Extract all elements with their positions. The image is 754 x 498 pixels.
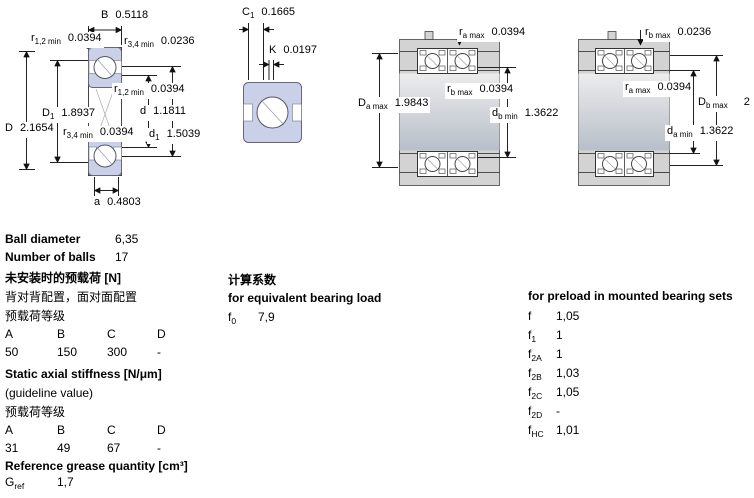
stiffness-value-C: 67 (107, 441, 120, 455)
bearing-datasheet-page: { "dims": { "d1_B": {"base":"B","sub":""… (0, 0, 754, 498)
factor-f2C-symbol: f2C (528, 385, 542, 403)
preload-factors-title: for preload in mounted bearing sets (528, 289, 733, 303)
factor-f-symbol: f (528, 309, 531, 327)
stiffness-value-A: 31 (5, 441, 18, 455)
dim-label-ra-max-shaft: ra max0.0394 (623, 81, 693, 97)
factor-f-value: 1,05 (556, 309, 579, 323)
f0-symbol: f0 (228, 310, 236, 328)
dim-label-da-min: da min1.3622 (665, 125, 735, 141)
factor-fHC-value: 1,01 (556, 423, 579, 437)
dim-label-B: B0.5118 (99, 9, 150, 25)
factor-f2D-symbol: f2D (528, 404, 542, 422)
dim-label-Db-max: Db max2 (696, 96, 752, 112)
stiffness-note: (guideline value) (5, 386, 93, 400)
dim-label-r34-min-mid: r3,4 min0.0394 (61, 126, 136, 142)
class-header-D: D (157, 327, 166, 341)
stiffness-value-D: - (157, 441, 161, 455)
factor-f2C-value: 1,05 (556, 385, 579, 399)
dim-label-ra-max-housing: ra max0.0394 (457, 26, 527, 42)
dim-label-db-min: db min1.3622 (490, 107, 560, 123)
dim-label-D1: D11.8937 (40, 107, 97, 123)
preload-value-A: 50 (5, 345, 18, 359)
factor-f2A-value: 1 (556, 347, 563, 361)
preload-value-D: - (157, 345, 161, 359)
f0-value: 7,9 (258, 310, 275, 324)
preload-value-B: 150 (57, 345, 77, 359)
grease-ref-value: 1,7 (57, 475, 74, 489)
stiffness-class-label: 预载荷等级 (5, 405, 65, 419)
dim-label-a: a0.4803 (92, 196, 143, 212)
bearing-side-view-drawing (239, 23, 302, 143)
dim-label-r34-min-top: r3,4 min0.0236 (122, 35, 197, 51)
stiffness-header-A: A (5, 423, 13, 437)
class-header-B: B (57, 327, 65, 341)
class-header-A: A (5, 327, 13, 341)
ball-diameter-value: 6,35 (115, 232, 138, 246)
dim-label-D: D2.1654 (3, 122, 56, 138)
dim-label-d1: d11.5039 (147, 128, 202, 144)
stiffness-title: Static axial stiffness [N/μm] (5, 367, 162, 381)
number-of-balls-value: 17 (115, 250, 128, 264)
calculation-factors-title: 计算系数 (228, 273, 276, 287)
preload-config-note: 背对背配置，面对面配置 (5, 290, 137, 304)
factor-f1-symbol: f1 (528, 328, 536, 346)
dim-label-C1: C10.1665 (240, 6, 297, 22)
dim-label-Da-max: Da max1.9843 (356, 97, 430, 113)
dim-label-d: d1.1811 (138, 105, 188, 121)
stiffness-header-B: B (57, 423, 65, 437)
factor-f2B-value: 1,03 (556, 366, 579, 380)
dim-label-r12-min-mid: r1,2 min0.0394 (112, 83, 187, 99)
factor-f2A-symbol: f2A (528, 347, 542, 365)
factor-f2D-value: - (556, 404, 560, 418)
preload-value-C: 300 (107, 345, 127, 359)
dim-label-r12-min-top: r1,2 min0.0394 (29, 32, 104, 48)
factor-f2B-symbol: f2B (528, 366, 542, 384)
dim-label-rb-max-shaft: rb max0.0236 (643, 26, 713, 42)
factor-f1-value: 1 (556, 328, 563, 342)
ball-diameter-label: Ball diameter (5, 232, 80, 246)
factor-fHC-symbol: fHC (528, 423, 544, 441)
stiffness-header-D: D (157, 423, 166, 437)
stiffness-header-C: C (107, 423, 116, 437)
dim-label-K: K0.0197 (267, 44, 319, 60)
grease-title: Reference grease quantity [cm³] (5, 459, 188, 473)
equivalent-load-title: for equivalent bearing load (228, 291, 381, 305)
preload-class-label: 预载荷等级 (5, 309, 65, 323)
stiffness-value-B: 49 (57, 441, 70, 455)
grease-ref-symbol: Gref (5, 475, 24, 493)
preload-unmounted-title: 未安装时的预载荷 [N] (5, 271, 121, 285)
class-header-C: C (107, 327, 116, 341)
dim-label-rb-max-housing: rb max0.0394 (445, 83, 515, 99)
number-of-balls-label: Number of balls (5, 250, 96, 264)
